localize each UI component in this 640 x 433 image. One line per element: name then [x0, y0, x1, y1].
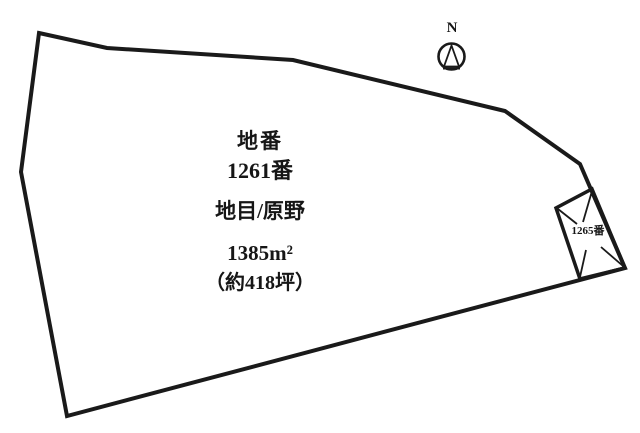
lot-title-label: 地番 [140, 130, 380, 152]
main-parcel-outline [21, 33, 625, 416]
land-category-label: 地目/原野 [140, 200, 380, 222]
sub-parcel-diagonal-top [583, 191, 592, 222]
north-label: N [440, 21, 464, 37]
compass-needle-icon [444, 46, 459, 67]
sub-parcel-label: 1265番 [561, 226, 615, 238]
area-tsubo-label: （約418坪） [140, 273, 380, 294]
land-plot-diagram: N 地番 1261番 地目/原野 1385m² （約418坪） 1265番 [0, 0, 640, 433]
sub-parcel-diagonal-bottom [580, 250, 586, 277]
lot-number-label: 1261番 [140, 159, 380, 182]
area-sqm-label: 1385m² [140, 242, 380, 264]
north-compass-icon [439, 44, 465, 70]
